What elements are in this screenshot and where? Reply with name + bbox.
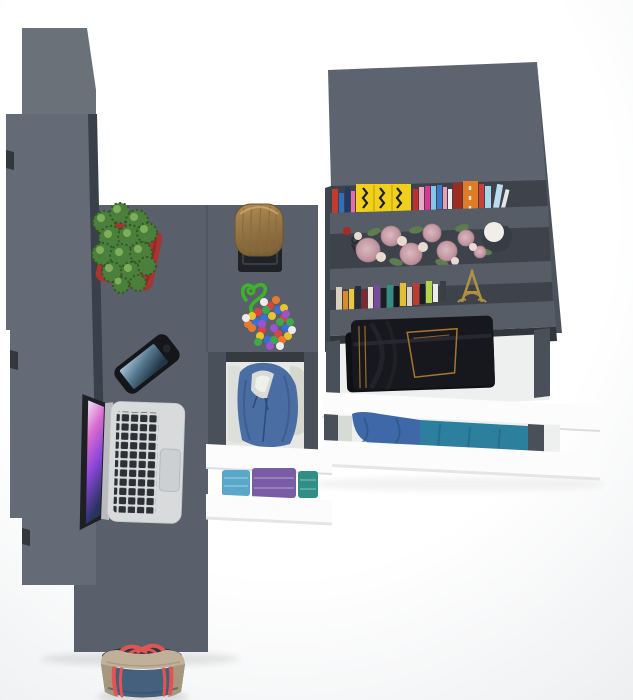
book-spine xyxy=(355,286,361,310)
book-spine xyxy=(381,288,386,308)
book-spine xyxy=(339,193,344,213)
rose-bud xyxy=(376,252,386,262)
book-spine xyxy=(448,189,452,209)
folded-shirt xyxy=(252,468,296,498)
bead xyxy=(270,324,278,332)
cactus-leaf xyxy=(138,257,156,275)
drawer-bottom-shadow xyxy=(305,477,605,491)
wood-log-stool xyxy=(235,204,283,272)
book-spine xyxy=(431,186,436,210)
cactus-leaf xyxy=(130,275,146,291)
bead xyxy=(272,296,280,304)
bead xyxy=(288,326,296,334)
folded-shirts-row xyxy=(222,468,318,498)
cactus-leaf-tip xyxy=(96,246,104,254)
book-spine xyxy=(400,283,406,306)
folded-shirt xyxy=(298,471,318,498)
bead xyxy=(286,318,294,326)
bead xyxy=(276,318,284,326)
cactus-leaf-tip xyxy=(104,230,112,238)
bead xyxy=(276,342,284,350)
book-spine xyxy=(351,191,355,213)
drawer-rail xyxy=(534,328,550,398)
rose-flower xyxy=(423,224,441,242)
bead xyxy=(282,310,290,318)
rose-bud xyxy=(418,242,428,252)
bookshelf-top-panel xyxy=(328,62,546,187)
drawer-clothes-middle xyxy=(228,363,304,447)
wardrobe-top-cabinet xyxy=(22,28,96,114)
furniture-top-view-render xyxy=(0,0,633,700)
candle-ball xyxy=(484,222,504,242)
book-spine xyxy=(362,290,367,310)
wardrobe-handle xyxy=(10,350,18,370)
book-spine xyxy=(479,184,484,208)
folded-jeans xyxy=(345,315,495,392)
wood-base-shade xyxy=(242,241,276,253)
bead xyxy=(262,306,270,314)
book-spine xyxy=(443,187,447,209)
bead xyxy=(254,338,262,346)
product-render-stage xyxy=(0,0,633,700)
book-spine xyxy=(368,287,373,309)
book-spine xyxy=(440,281,446,301)
book-spine xyxy=(374,285,380,309)
book-spine xyxy=(332,189,338,213)
laptop-trackpad xyxy=(159,449,180,492)
denim-tote-bag xyxy=(97,646,189,700)
bead xyxy=(242,314,250,322)
book-spine xyxy=(394,286,399,307)
rose-bud xyxy=(354,232,362,240)
bead xyxy=(260,298,268,306)
cactus-leaf-tip xyxy=(123,229,131,237)
cactus-leaf-tip xyxy=(113,205,121,213)
book-spine xyxy=(387,285,393,308)
red-ornament xyxy=(343,227,351,235)
book-spine xyxy=(419,187,424,211)
book-spine xyxy=(336,287,342,311)
book-spine xyxy=(426,281,432,303)
bead xyxy=(258,320,266,328)
book-spine xyxy=(407,287,412,306)
cactus-leaf-tip xyxy=(115,248,123,256)
book-spine xyxy=(433,284,438,302)
folded-shirt xyxy=(222,470,250,496)
book-spine xyxy=(425,186,430,210)
cactus-leaf-tip xyxy=(134,245,142,253)
cactus-leaf-tip xyxy=(130,213,138,221)
book-spine xyxy=(453,183,462,210)
cactus-leaf-tip xyxy=(140,225,148,233)
book-spine xyxy=(437,185,442,209)
wardrobe-handle xyxy=(22,528,30,546)
wardrobe-handle xyxy=(6,150,14,170)
cactus-leaf-tip xyxy=(97,214,105,222)
bead xyxy=(266,342,274,350)
bead xyxy=(268,312,276,320)
book-spine xyxy=(413,189,418,211)
book-spine xyxy=(349,289,354,311)
book-spine xyxy=(345,187,350,213)
cactus-leaf xyxy=(137,223,157,243)
rose-bud xyxy=(451,257,459,265)
cactus-leaf-tip xyxy=(124,264,132,272)
white-cloth xyxy=(338,416,352,444)
book-spine xyxy=(463,181,478,210)
book-spine xyxy=(485,186,491,208)
cactus-leaf-tip xyxy=(105,264,113,272)
rose-bud xyxy=(397,236,407,246)
laptop-keyboard xyxy=(113,411,158,513)
book-spine xyxy=(420,284,425,304)
book-spine xyxy=(343,291,348,311)
rose-bud xyxy=(469,243,477,251)
laptop xyxy=(78,394,186,534)
eiffel-top xyxy=(470,270,473,273)
cactus-leaf-tip xyxy=(115,278,122,285)
book-spine xyxy=(413,283,419,305)
